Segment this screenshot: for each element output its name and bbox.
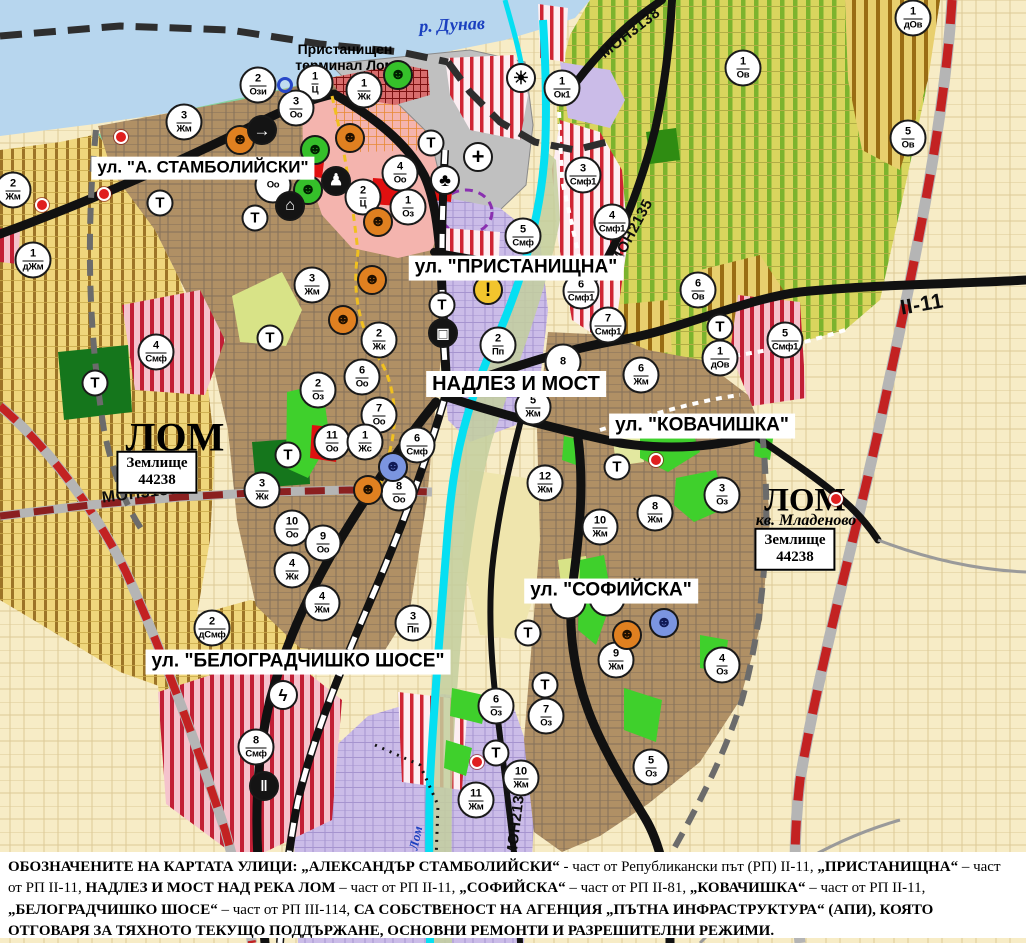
zone-marker-1-Оз: 1Оз — [390, 189, 427, 226]
street-label-stamboliyski: ул. "А. СТАМБОЛИЙСКИ" — [91, 157, 314, 180]
transport-marker: Т — [429, 292, 456, 319]
legend-segment: „БЕЛОГРАДЧИШКО ШОСЕ“ — [8, 902, 218, 918]
zone-marker-4-Жк: 4Жк — [274, 552, 311, 589]
zone-marker-3-Жм: 3Жм — [294, 267, 331, 304]
legend-segment: – част от РП II-11, — [336, 880, 460, 896]
transport-marker: Т — [532, 672, 559, 699]
zone-marker-8-Жм: 8Жм — [637, 495, 674, 532]
zone-marker-4-Оз: 4Оз — [704, 647, 741, 684]
zone-marker-11-Жм: 11Жм — [458, 782, 495, 819]
zone-marker-5-Ов: 5Ов — [890, 120, 927, 157]
zone-marker-3-Жм: 3Жм — [166, 104, 203, 141]
zone-marker-4-Оо: 4Оо — [382, 155, 419, 192]
label-line: Пристанищен — [295, 41, 395, 57]
zone-marker-2-Пп: 2Пп — [480, 327, 517, 364]
transport-marker: Т — [515, 620, 542, 647]
legend-segment: „КОВАЧИШКА“ — [690, 880, 806, 896]
bluering-icon — [277, 77, 293, 93]
mask-orange-icon — [353, 475, 383, 505]
legend-segment: „СОФИЙСКА“ — [459, 880, 565, 896]
area-box-line: 44238 — [126, 472, 187, 489]
legend-segment: „ПРИСТАНИЩНА“ — [817, 859, 958, 875]
truck-icon — [428, 318, 458, 348]
street-label-pristanishtna: ул. "ПРИСТАНИЩНА" — [409, 256, 624, 281]
zone-marker-3-Жк: 3Жк — [244, 472, 281, 509]
legend-segment: - част от Републикански път (РП) II-11, — [560, 859, 818, 875]
transport-marker: Т — [604, 454, 631, 481]
mask-orange-icon — [328, 305, 358, 335]
zone-marker-1-Жк: 1Жк — [346, 72, 383, 109]
zone-marker-10-Жм: 10Жм — [582, 509, 619, 546]
zone-marker-1-дЖм: 1дЖм — [15, 242, 52, 279]
transport-marker: Т — [82, 370, 109, 397]
place-label-danube-river: р. Дунав — [419, 13, 486, 37]
zone-marker-5-Смф: 5Смф — [505, 218, 542, 255]
legend-segment: ОБОЗНАЧЕНИТЕ НА КАРТАТА УЛИЦИ: „АЛЕКСАНД… — [8, 859, 560, 875]
arrow-icon — [247, 115, 277, 145]
zone-marker-4-Смф: 4Смф — [138, 334, 175, 371]
red-point-marker — [97, 187, 111, 201]
legend-segment: НАДЛЕЗ И МОСТ НАД РЕКА ЛОМ — [85, 880, 335, 896]
transport-marker: Т — [418, 130, 445, 157]
zone-marker-9-Оо: 9Оо — [305, 525, 342, 562]
red-point-marker — [649, 453, 663, 467]
legend-note: ОБОЗНАЧЕНИТЕ НА КАРТАТА УЛИЦИ: „АЛЕКСАНД… — [0, 852, 1026, 938]
street-label-kovachishka: ул. "КОВАЧИШКА" — [609, 414, 795, 439]
zone-marker-6-Ов: 6Ов — [680, 272, 717, 309]
transport-marker: Т — [707, 314, 734, 341]
zone-marker-5-Оз: 5Оз — [633, 749, 670, 786]
zone-marker-1-дОв: 1дОв — [895, 0, 932, 37]
lightning-icon — [268, 680, 298, 710]
zone-marker-1-Ов: 1Ов — [725, 50, 762, 87]
zone-marker-8-Смф: 8Смф — [238, 729, 275, 766]
mask-orange-icon — [612, 620, 642, 650]
legend-segment: – част от РП II-11, — [805, 880, 925, 896]
transport-marker: Т — [483, 740, 510, 767]
zone-marker-6-Жм: 6Жм — [623, 357, 660, 394]
mask-blue-icon — [378, 452, 408, 482]
zone-marker-11-Оо: 11Оо — [314, 424, 351, 461]
zone-marker-10-Жм: 10Жм — [503, 760, 540, 797]
zone-marker-2-дСмф: 2дСмф — [194, 610, 231, 647]
zone-marker-1-дОв: 1дОв — [702, 340, 739, 377]
zone-marker-4-Смф1: 4Смф1 — [594, 204, 631, 241]
land-area-box: Землище44238 — [754, 528, 835, 571]
zone-marker-2-Оз: 2Оз — [300, 372, 337, 409]
transport-marker: Т — [257, 325, 284, 352]
area-box-line: Землище — [764, 532, 825, 549]
area-box-line: 44238 — [764, 549, 825, 566]
zone-marker-5-Смф1: 5Смф1 — [767, 322, 804, 359]
red-point-marker — [470, 755, 484, 769]
zone-marker-6-Оз: 6Оз — [478, 688, 515, 725]
sun-icon — [506, 63, 536, 93]
mask-green-icon — [383, 60, 413, 90]
street-label-sofiyska: ул. "СОФИЙСКА" — [524, 579, 698, 604]
mask-orange-icon — [335, 123, 365, 153]
zone-marker-12-Жм: 12Жм — [527, 465, 564, 502]
red-point-marker — [829, 492, 843, 506]
zone-marker-1-Жс: 1Жс — [347, 424, 384, 461]
cross-icon — [463, 142, 493, 172]
legend-segment: – част от РП II-81, — [566, 880, 690, 896]
mask-orange-icon — [357, 265, 387, 295]
zone-marker-3-Пп: 3Пп — [395, 605, 432, 642]
street-label-belogradchishko: ул. "БЕЛОГРАДЧИШКО ШОСЕ" — [146, 650, 451, 675]
zone-marker-7-Смф1: 7Смф1 — [590, 307, 627, 344]
red-point-marker — [35, 198, 49, 212]
zone-marker-4-Жм: 4Жм — [304, 585, 341, 622]
rail-icon — [249, 771, 279, 801]
zoning-map: 2Ози1Ц1Жк3Оо3Жм2Жм1Ок11Ов1дОв5Ов3Смф14См… — [0, 0, 1026, 943]
zone-marker-2-Жк: 2Жк — [361, 322, 398, 359]
zone-marker-3-Оо: 3Оо — [278, 90, 315, 127]
label-line: р. Дунав — [419, 13, 486, 37]
red-point-marker — [114, 130, 128, 144]
zone-marker-6-Оо: 6Оо — [344, 359, 381, 396]
zone-marker-1-Ок1: 1Ок1 — [544, 70, 581, 107]
mask-orange-icon — [363, 207, 393, 237]
mask-blue-icon — [649, 608, 679, 638]
zone-marker-2-Ози: 2Ози — [240, 67, 277, 104]
arch-icon — [275, 191, 305, 221]
legend-segment: – част от РП III-114, — [218, 902, 354, 918]
monument-icon — [321, 166, 351, 196]
transport-marker: Т — [147, 190, 174, 217]
land-area-box: Землище44238 — [116, 451, 197, 494]
transport-marker: Т — [242, 205, 269, 232]
clover-icon — [430, 165, 460, 195]
zone-marker-3-Смф1: 3Смф1 — [565, 157, 602, 194]
transport-marker: Т — [275, 442, 302, 469]
zone-marker-3-Оз: 3Оз — [704, 477, 741, 514]
area-box-line: Землище — [126, 455, 187, 472]
zone-marker-7-Оз: 7Оз — [528, 698, 565, 735]
street-label-nadlez-i-most: НАДЛЕЗ И МОСТ — [426, 371, 606, 397]
